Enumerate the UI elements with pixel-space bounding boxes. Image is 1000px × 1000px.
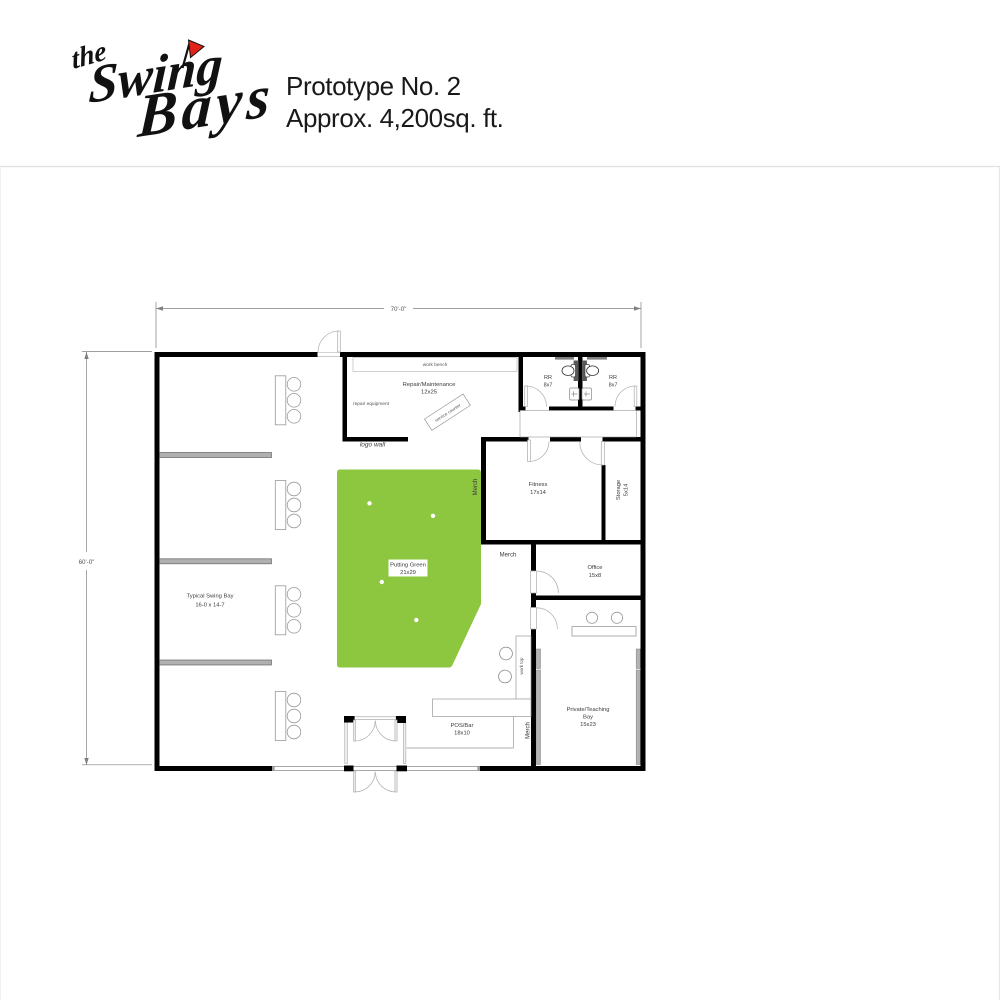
svg-text:RR: RR <box>544 375 552 381</box>
svg-text:repair equipment: repair equipment <box>353 401 390 407</box>
svg-text:17x14: 17x14 <box>530 490 547 496</box>
svg-text:Merch: Merch <box>473 479 479 496</box>
svg-text:8x7: 8x7 <box>609 383 618 389</box>
svg-text:16-0 x 14-7: 16-0 x 14-7 <box>195 603 224 609</box>
svg-text:Prototype No. 2: Prototype No. 2 <box>286 71 461 101</box>
svg-text:work top: work top <box>519 657 524 675</box>
svg-text:60'-0": 60'-0" <box>79 559 95 566</box>
svg-text:12x25: 12x25 <box>421 390 438 396</box>
svg-text:Private/Teaching: Private/Teaching <box>567 707 610 713</box>
svg-text:POS/Bar: POS/Bar <box>451 723 474 729</box>
svg-text:18x10: 18x10 <box>454 731 470 737</box>
svg-text:Bay: Bay <box>583 715 593 721</box>
svg-text:Merch: Merch <box>500 553 517 559</box>
svg-text:Merch: Merch <box>526 722 532 739</box>
svg-text:21x29: 21x29 <box>400 570 416 576</box>
svg-text:RR: RR <box>609 375 617 381</box>
svg-text:Approx. 4,200sq. ft.: Approx. 4,200sq. ft. <box>286 103 503 133</box>
svg-text:15x8: 15x8 <box>589 573 602 579</box>
svg-text:8x7: 8x7 <box>544 383 553 389</box>
svg-text:Repair/Maintenance: Repair/Maintenance <box>403 382 456 388</box>
svg-text:work bench: work bench <box>423 362 448 368</box>
svg-text:Fitness: Fitness <box>529 482 548 488</box>
svg-text:70'-0": 70'-0" <box>391 306 407 313</box>
svg-text:logo wall: logo wall <box>360 442 386 449</box>
svg-text:Office: Office <box>587 565 602 571</box>
svg-text:Typical Swing Bay: Typical Swing Bay <box>186 594 233 600</box>
svg-text:Putting Green: Putting Green <box>390 563 426 569</box>
svg-text:Storage5x14: Storage5x14 <box>616 480 630 500</box>
svg-text:15x23: 15x23 <box>580 722 596 728</box>
